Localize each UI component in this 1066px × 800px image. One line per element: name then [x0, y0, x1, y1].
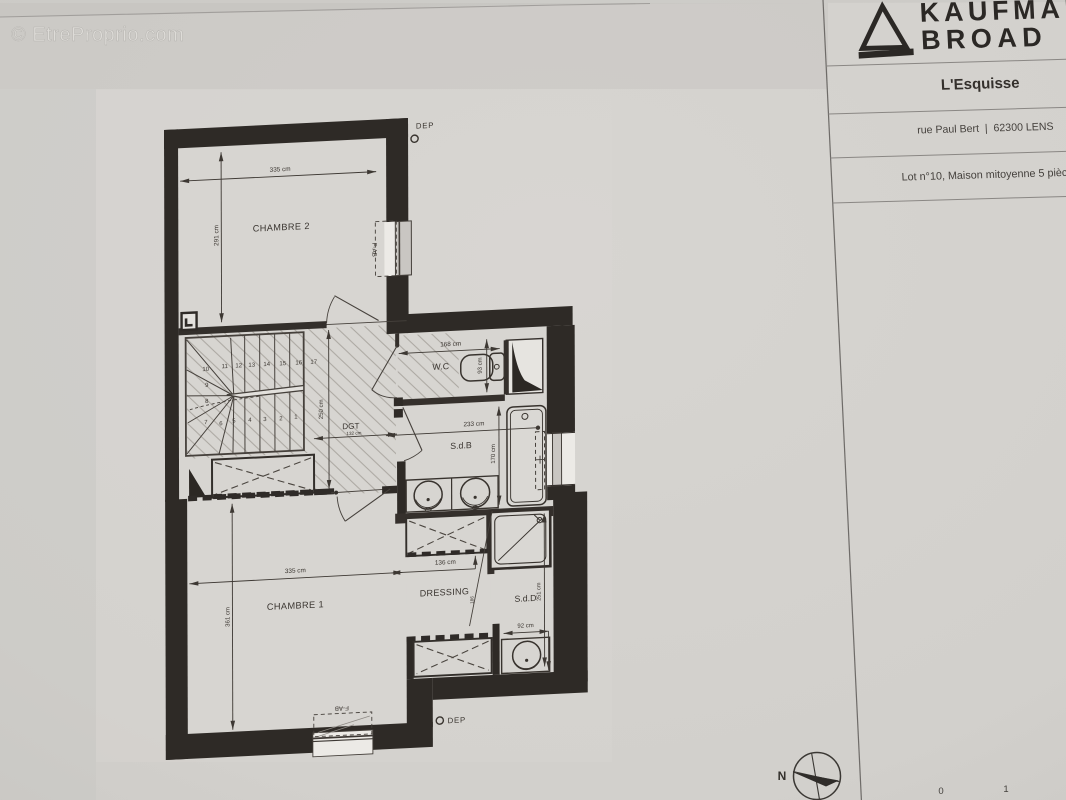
svg-text:251 cm: 251 cm	[536, 582, 542, 601]
svg-text:250 cm: 250 cm	[319, 399, 325, 419]
svg-text:L'Esquisse: L'Esquisse	[941, 75, 1020, 94]
svg-text:16: 16	[295, 360, 302, 366]
svg-text:17: 17	[310, 360, 317, 366]
svg-text:F-AB: F-AB	[370, 243, 377, 257]
svg-text:186: 186	[469, 596, 474, 604]
svg-text:170 cm: 170 cm	[491, 444, 497, 464]
svg-text:1: 1	[1003, 784, 1008, 795]
svg-text:335 cm: 335 cm	[270, 166, 291, 174]
svg-text:13: 13	[248, 363, 255, 369]
svg-text:0: 0	[938, 786, 943, 797]
svg-text:132 cm: 132 cm	[346, 430, 361, 436]
svg-text:335 cm: 335 cm	[285, 567, 306, 575]
svg-text:233 cm: 233 cm	[463, 420, 484, 428]
svg-text:93 cm: 93 cm	[478, 357, 484, 374]
svg-text:BROAD: BROAD	[920, 22, 1047, 56]
svg-text:F-AB: F-AB	[335, 704, 349, 712]
svg-text:10: 10	[202, 367, 209, 373]
svg-text:136 cm: 136 cm	[435, 559, 456, 567]
svg-text:12: 12	[235, 363, 242, 369]
svg-text:14: 14	[263, 362, 270, 368]
svg-text:168 cm: 168 cm	[440, 340, 461, 348]
svg-text:N: N	[778, 769, 787, 783]
svg-text:92 cm: 92 cm	[517, 623, 533, 630]
svg-text:W.C: W.C	[432, 361, 449, 372]
svg-text:S.d.D: S.d.D	[514, 593, 536, 604]
svg-text:361 cm: 361 cm	[225, 607, 231, 627]
svg-text:DEP: DEP	[416, 121, 434, 131]
svg-text:15: 15	[279, 361, 286, 367]
svg-text:DEP: DEP	[448, 715, 466, 725]
svg-text:S.d.B: S.d.B	[450, 440, 472, 451]
svg-text:11: 11	[222, 364, 229, 370]
svg-text:© EtreProprio.com: © EtreProprio.com	[11, 24, 184, 46]
svg-text:291 cm: 291 cm	[213, 225, 220, 246]
